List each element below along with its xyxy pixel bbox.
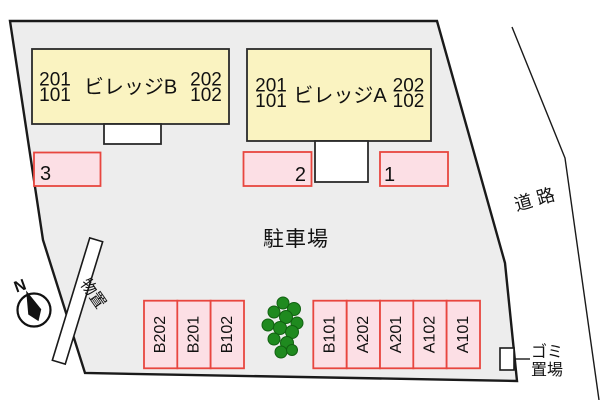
parking-lot-label: 駐車場 [263, 228, 329, 251]
garbage-label-line1: ゴミ [531, 342, 563, 361]
parking-space-2-label: 2 [295, 164, 306, 186]
parking-space-1-label: 1 [384, 164, 395, 186]
garbage-label-line2: 置場 [531, 361, 563, 379]
building-a-room-102: 102 [393, 91, 425, 112]
garbage-station-box [500, 348, 514, 370]
parking-space-3-label: 3 [40, 163, 51, 185]
building-a-name-label: ビレッジA [293, 84, 387, 107]
building-b-room-102: 102 [190, 85, 222, 106]
north-label: N [12, 277, 29, 297]
site-plan-canvas: ビレッジB 201 101 202 102 ビレッジA 201 101 202 … [0, 0, 600, 400]
site-plan-page: ビレッジB 201 101 202 102 ビレッジA 201 101 202 … [0, 0, 600, 400]
stall-a102-label: A102 [422, 316, 439, 353]
road-label: 道路 [512, 183, 562, 215]
stall-b101-label: B101 [322, 316, 339, 353]
entrance-village-a [315, 141, 368, 182]
stall-b102-label: B102 [219, 316, 236, 353]
stall-a101-label: A101 [455, 316, 472, 353]
stall-b201-label: B201 [186, 316, 203, 353]
building-a-room-101: 101 [255, 91, 287, 112]
stall-a201-label: A201 [388, 316, 405, 353]
building-b-room-101: 101 [39, 85, 71, 106]
entrance-village-b [104, 124, 161, 144]
stall-a202-label: A202 [355, 316, 372, 353]
stall-b202-label: B202 [152, 316, 169, 353]
building-b-name-label: ビレッジB [84, 76, 177, 99]
